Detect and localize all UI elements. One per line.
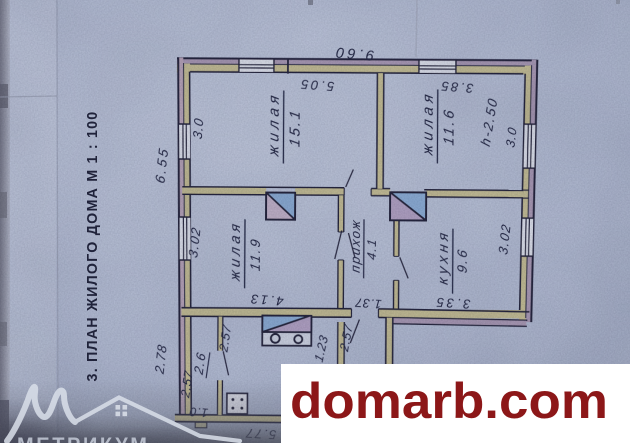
svg-text:domarb.com: domarb.com — [290, 373, 608, 429]
svg-text:МЕТРИКУМ: МЕТРИКУМ — [17, 435, 150, 443]
